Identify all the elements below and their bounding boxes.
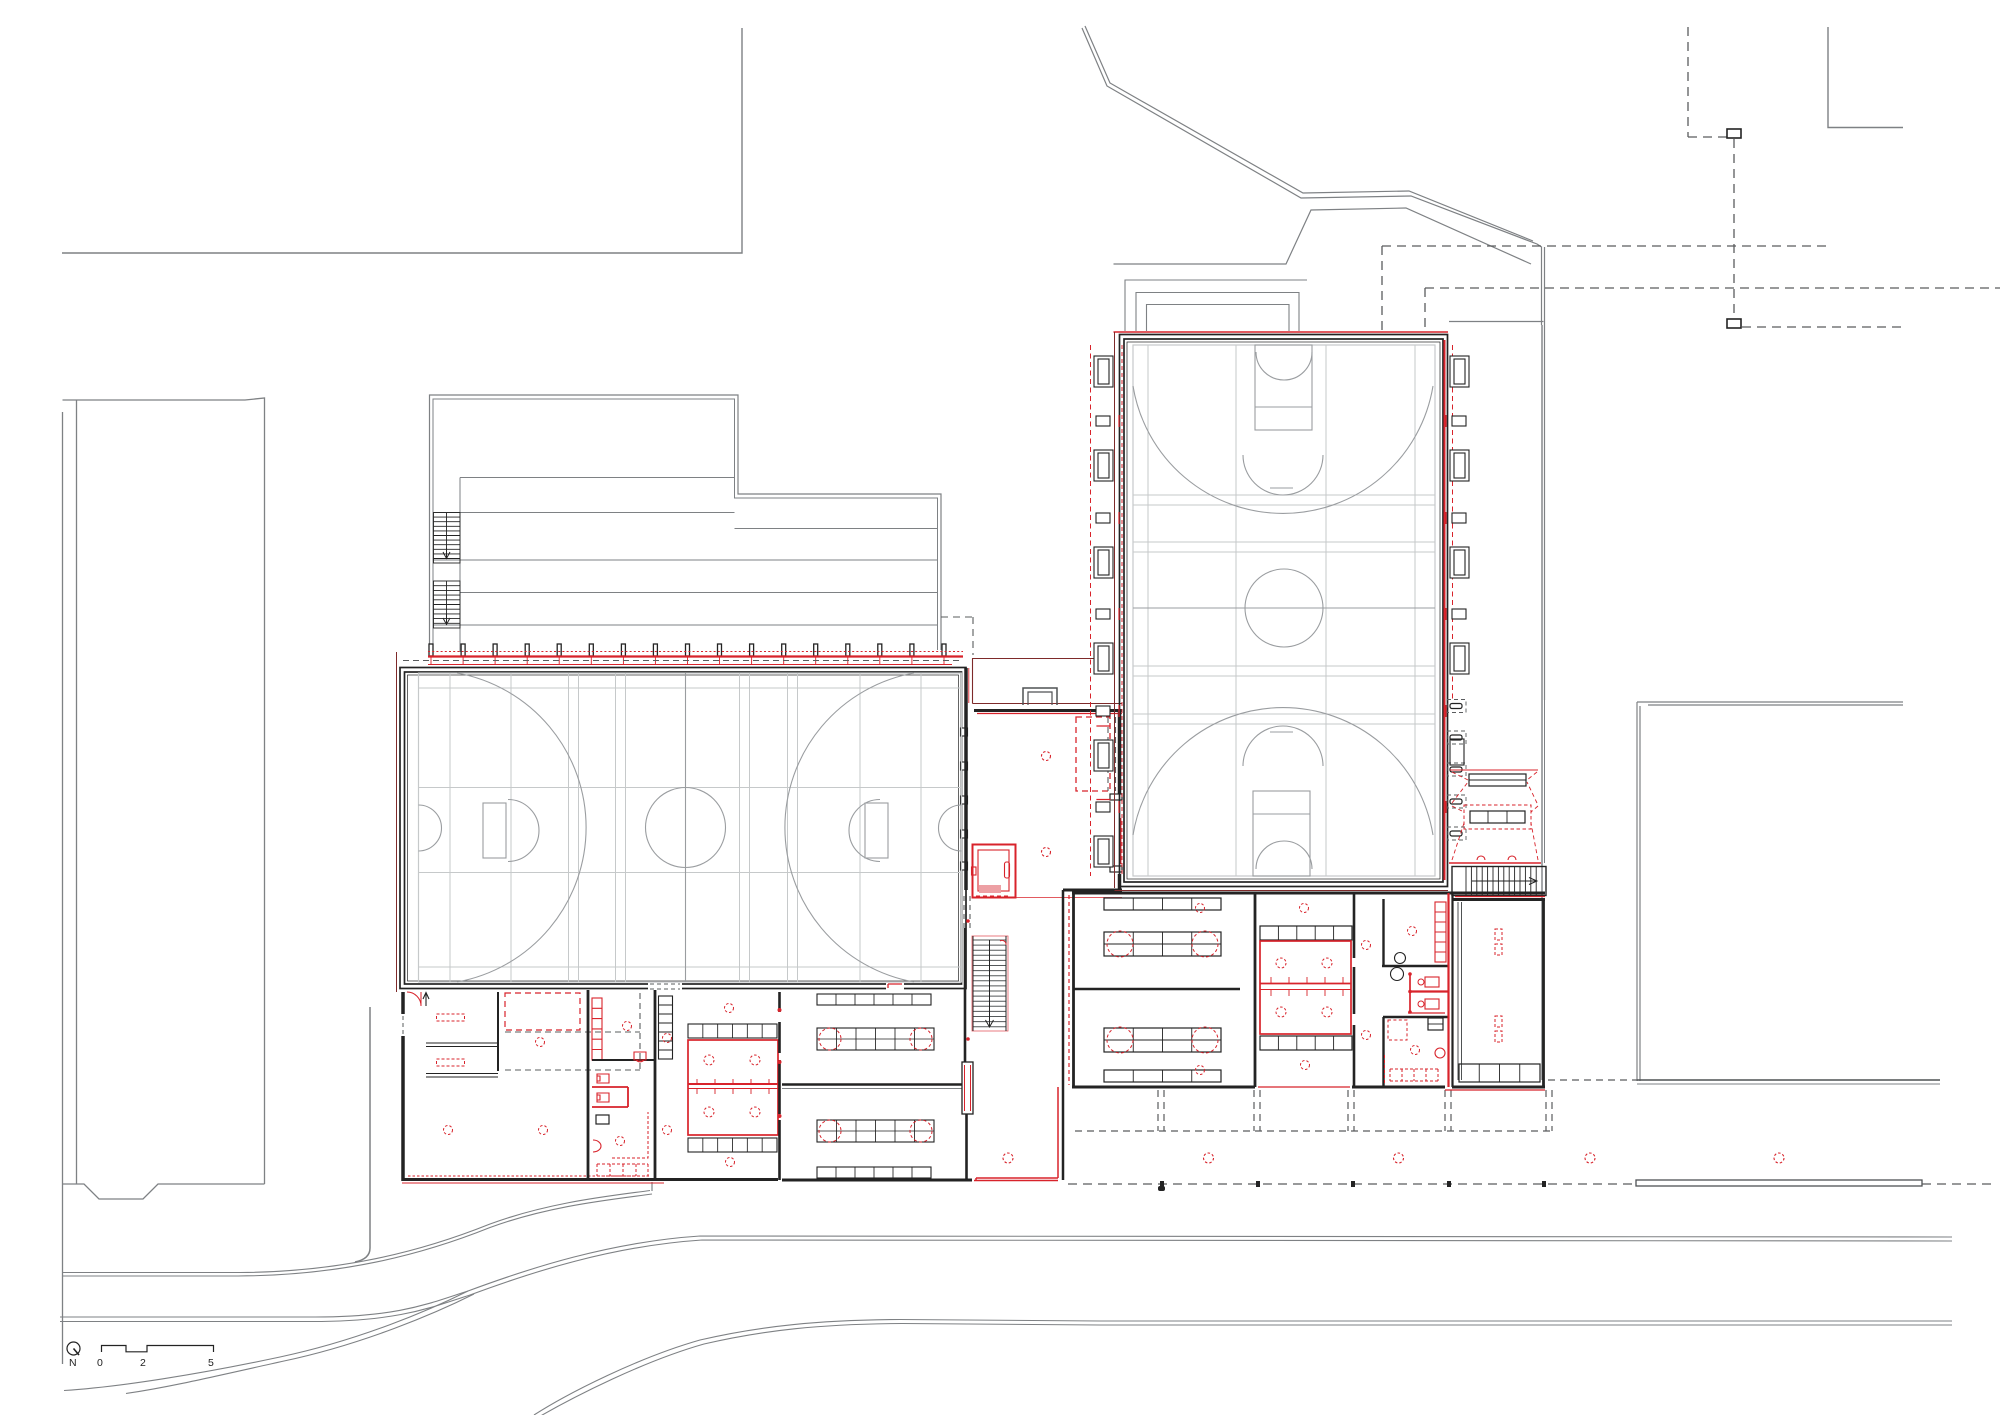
svg-text:0: 0 <box>97 1357 103 1369</box>
svg-text:5: 5 <box>208 1357 214 1369</box>
svg-text:2: 2 <box>140 1357 146 1369</box>
svg-text:N: N <box>69 1357 77 1369</box>
